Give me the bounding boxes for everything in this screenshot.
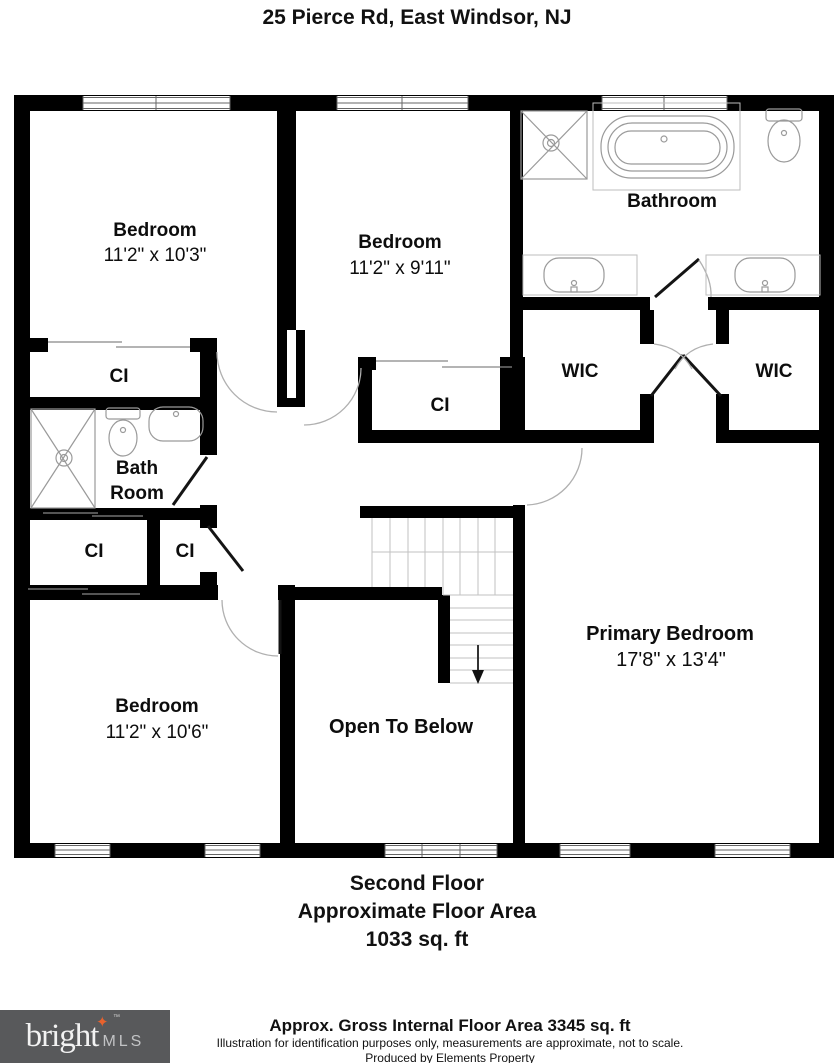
label-open-to-below: Open To Below bbox=[329, 716, 474, 738]
toilet-small bbox=[106, 408, 140, 456]
vanity-left bbox=[523, 255, 637, 295]
bedroom2-door-arc bbox=[304, 368, 361, 425]
label-bath-room-line1: Bath bbox=[116, 458, 158, 479]
sink-small bbox=[149, 407, 203, 441]
label-primary-bedroom: Primary Bedroom bbox=[586, 623, 754, 645]
label-closet-top-left: CI bbox=[110, 366, 129, 387]
bathtub bbox=[593, 103, 740, 190]
label-wic-left: WIC bbox=[562, 361, 599, 382]
label-bath-room-line2: Room bbox=[110, 483, 164, 504]
disclaimer-text: Illustration for identification purposes… bbox=[170, 1036, 730, 1051]
shower-small bbox=[31, 409, 95, 508]
bright-mls-logo: bright ✦ ™ MLS bbox=[0, 1010, 170, 1063]
floor-plan-page: 25 Pierce Rd, East Windsor, NJ bbox=[0, 0, 834, 1063]
caption-area-value: 1033 sq. ft bbox=[0, 926, 834, 954]
dims-bedroom-top-middle: 11'2" x 9'11" bbox=[349, 258, 450, 279]
bath-room-door-leaf bbox=[173, 457, 207, 505]
caption-area-label: Approximate Floor Area bbox=[0, 898, 834, 926]
bedroom1-door-arc bbox=[217, 352, 277, 412]
vanity-right bbox=[706, 255, 820, 295]
producer-text: Produced by Elements Property bbox=[170, 1051, 730, 1063]
label-closet-central: CI bbox=[431, 395, 450, 416]
label-bathroom: Bathroom bbox=[627, 191, 717, 212]
label-wic-right: WIC bbox=[756, 361, 793, 382]
toilet-main bbox=[766, 109, 802, 162]
caption-floor-name: Second Floor bbox=[0, 870, 834, 898]
label-bedroom-bottom-left: Bedroom bbox=[115, 696, 198, 717]
label-closet-left-a: CI bbox=[85, 541, 104, 562]
bedroom3-door-arc bbox=[222, 600, 278, 656]
label-bedroom-top-middle: Bedroom bbox=[358, 232, 441, 253]
floor-caption: Second Floor Approximate Floor Area 1033… bbox=[0, 870, 834, 954]
stair-direction-arrow bbox=[472, 670, 484, 684]
trademark-symbol: ™ bbox=[113, 1014, 120, 1021]
logo-suffix-text: MLS bbox=[102, 1033, 144, 1051]
dims-primary-bedroom: 17'8" x 13'4" bbox=[616, 649, 726, 671]
bathroom-door-leaf bbox=[655, 259, 699, 297]
wic-right-door-leaf bbox=[683, 355, 721, 396]
footer-disclaimer-block: Approx. Gross Internal Floor Area 3345 s… bbox=[170, 1016, 730, 1063]
primary-door-arc bbox=[527, 448, 582, 505]
gross-area-note: Approx. Gross Internal Floor Area 3345 s… bbox=[170, 1016, 730, 1036]
bathroom-door-arc bbox=[699, 260, 711, 297]
shower-main bbox=[521, 111, 587, 179]
star-icon: ✦ bbox=[96, 1013, 109, 1031]
wic-left-door-leaf bbox=[651, 355, 683, 396]
closet-b-door-leaf bbox=[208, 526, 243, 571]
dims-bedroom-bottom-left: 11'2" x 10'6" bbox=[106, 722, 209, 743]
label-bedroom-top-left: Bedroom bbox=[113, 220, 196, 241]
label-closet-left-b: CI bbox=[176, 541, 195, 562]
dims-bedroom-top-left: 11'2" x 10'3" bbox=[104, 245, 207, 266]
logo-brand-text: bright bbox=[26, 1018, 99, 1055]
